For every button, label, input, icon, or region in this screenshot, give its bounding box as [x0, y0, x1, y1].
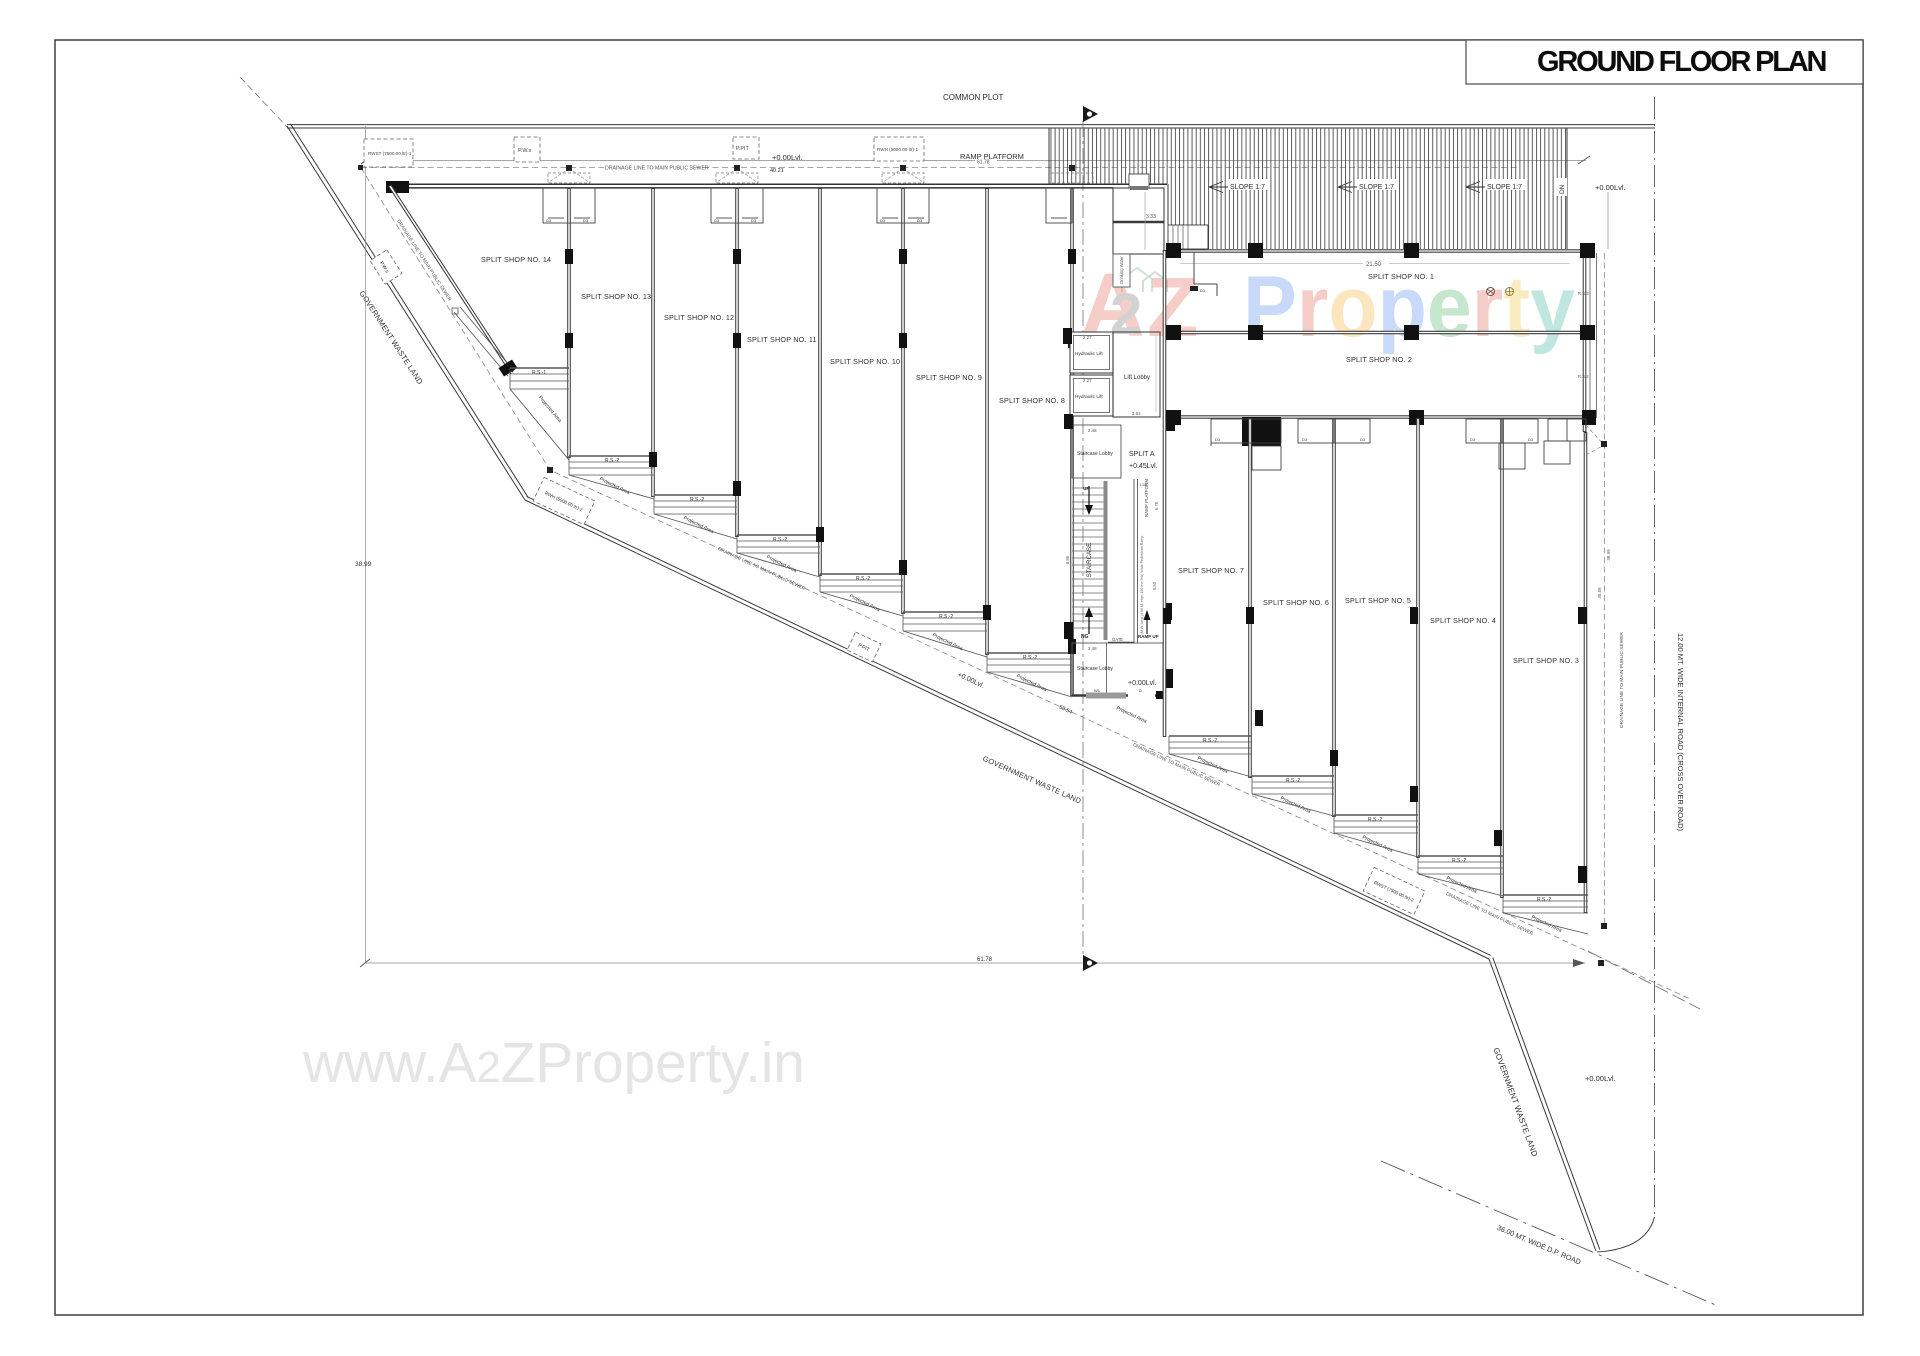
svg-text:D3: D3 — [1360, 437, 1366, 442]
svg-text:RAMP PLATFORM: RAMP PLATFORM — [960, 152, 1024, 161]
svg-text:SPLIT SHOP NO. 8: SPLIT SHOP NO. 8 — [999, 396, 1065, 405]
svg-text:D3: D3 — [751, 218, 757, 223]
svg-text:8.85: 8.85 — [1065, 555, 1070, 564]
svg-text:SPLIT SHOP NO. 14: SPLIT SHOP NO. 14 — [481, 255, 551, 264]
svg-text:R.S.-2: R.S.-2 — [939, 614, 953, 620]
svg-text:SPLIT SHOP NO. 9: SPLIT SHOP NO. 9 — [916, 373, 982, 382]
svg-text:Lift Lobby: Lift Lobby — [1124, 375, 1150, 381]
svg-text:SPLIT SHOP NO. 11: SPLIT SHOP NO. 11 — [747, 335, 817, 344]
svg-text:+0.00Lvl.: +0.00Lvl. — [1585, 1074, 1616, 1083]
svg-text:R.S.-1: R.S.-1 — [532, 370, 546, 376]
svg-text:R.S.-2: R.S.-2 — [605, 458, 619, 464]
svg-text:R.S-3: R.S-3 — [1578, 291, 1589, 296]
svg-text:RAMP PLATFORM: RAMP PLATFORM — [1144, 479, 1149, 518]
svg-text:D3: D3 — [714, 218, 720, 223]
svg-text:SLOPE 1:7: SLOPE 1:7 — [1359, 184, 1394, 191]
svg-text:P.PIT: P.PIT — [736, 146, 749, 152]
svg-text:Staircase Lobby: Staircase Lobby — [1077, 451, 1113, 457]
svg-text:61.78: 61.78 — [977, 957, 993, 963]
svg-text:38.99: 38.99 — [1606, 549, 1611, 561]
svg-text:GATE: GATE — [1112, 637, 1123, 642]
svg-text:Staircase Lobby: Staircase Lobby — [1077, 666, 1113, 672]
svg-text:D3: D3 — [1470, 437, 1476, 442]
svg-text:D3: D3 — [917, 218, 923, 223]
svg-text:SLOPE 1:7: SLOPE 1:7 — [1230, 184, 1265, 191]
svg-text:R.S.-2: R.S.-2 — [1023, 655, 1037, 661]
svg-text:P.W.s: P.W.s — [518, 148, 532, 154]
svg-text:R.S.-2: R.S.-2 — [1286, 778, 1300, 784]
svg-text:www.A2ZProperty.in: www.A2ZProperty.in — [302, 1031, 805, 1095]
svg-text:RWST (7500.00 ltr)-1: RWST (7500.00 ltr)-1 — [368, 151, 412, 156]
svg-text:DRAINAGE LINE TO MAIN PUBLIC S: DRAINAGE LINE TO MAIN PUBLIC SEWER — [1619, 632, 1625, 728]
svg-text:RWH (5000.00 ltr)-1: RWH (5000.00 ltr)-1 — [877, 147, 918, 152]
svg-text:D3: D3 — [583, 218, 589, 223]
svg-text:GROUND FLOOR PLAN: GROUND FLOOR PLAN — [1537, 46, 1829, 78]
svg-text:2.53: 2.53 — [1132, 411, 1141, 416]
svg-text:D3: D3 — [880, 218, 886, 223]
svg-text:STAIRCASE: STAIRCASE — [1086, 543, 1093, 578]
svg-text:SPLIT SHOP NO. 3: SPLIT SHOP NO. 3 — [1513, 656, 1579, 665]
svg-text:2: 2 — [1110, 282, 1142, 347]
svg-text:2.27: 2.27 — [1083, 335, 1092, 340]
svg-text:Hydraulic Lift: Hydraulic Lift — [1075, 394, 1103, 400]
svg-text:SPLIT SHOP NO. 12: SPLIT SHOP NO. 12 — [664, 313, 734, 322]
svg-text:DN: DN — [1559, 184, 1566, 194]
svg-text:SPLIT SHOP NO. 10: SPLIT SHOP NO. 10 — [830, 357, 900, 366]
svg-text:R.S-2: R.S-2 — [1578, 374, 1589, 379]
svg-text:NG: NG — [1081, 634, 1089, 640]
svg-text:SPLIT SHOP NO. 7: SPLIT SHOP NO. 7 — [1178, 566, 1244, 575]
svg-text:D3: D3 — [546, 218, 552, 223]
svg-text:SPLIT SHOP NO. 5: SPLIT SHOP NO. 5 — [1345, 596, 1411, 605]
svg-text:+0.45Lvl.: +0.45Lvl. — [1129, 463, 1158, 470]
svg-text:6.75: 6.75 — [1154, 501, 1159, 510]
svg-text:R.S.-2: R.S.-2 — [1452, 858, 1466, 864]
svg-text:2.27: 2.27 — [1083, 378, 1092, 383]
svg-text:W1: W1 — [1094, 688, 1101, 693]
svg-text:SPLIT SHOP NO. 13: SPLIT SHOP NO. 13 — [581, 292, 651, 301]
svg-text:D3: D3 — [1200, 288, 1206, 293]
svg-text:21.50: 21.50 — [1366, 262, 1382, 268]
svg-text:40.21: 40.21 — [770, 168, 784, 174]
svg-text:SPLIT SHOP NO. 1: SPLIT SHOP NO. 1 — [1368, 272, 1434, 281]
svg-text:D3: D3 — [1302, 437, 1308, 442]
svg-text:12.00 MT. WIDE INTERNAL ROAD (: 12.00 MT. WIDE INTERNAL ROAD (CROSS OVER… — [1676, 633, 1685, 832]
svg-text:R.S.-2: R.S.-2 — [1368, 817, 1382, 823]
svg-text:D3: D3 — [1215, 437, 1221, 442]
svg-text:R.S.-2: R.S.-2 — [856, 576, 870, 582]
svg-text:SPLIT SHOP NO. 6: SPLIT SHOP NO. 6 — [1263, 598, 1329, 607]
svg-text:2.48: 2.48 — [1088, 646, 1097, 651]
svg-text:SLOPE 1:7: SLOPE 1:7 — [1487, 184, 1522, 191]
svg-text:3.33: 3.33 — [1146, 214, 1156, 220]
svg-text:(M.W. long (3.00 M. High 150 m: (M.W. long (3.00 M. High 150 mm thk) Wid… — [1140, 536, 1144, 635]
svg-text:RAMP UP: RAMP UP — [1138, 634, 1159, 639]
svg-text:UP: UP — [1083, 486, 1089, 491]
svg-text:R.S.-2: R.S.-2 — [773, 537, 787, 543]
svg-text:2.48: 2.48 — [1088, 428, 1097, 433]
svg-text:R.S.-2: R.S.-2 — [1537, 897, 1551, 903]
svg-text:D3: D3 — [1528, 437, 1534, 442]
svg-text:D: D — [1139, 688, 1142, 693]
svg-text:38.99: 38.99 — [355, 561, 372, 568]
svg-text:Drinking Water: Drinking Water — [1119, 256, 1124, 284]
svg-text:SPLIT A: SPLIT A — [1129, 451, 1155, 458]
svg-text:R.S.-2: R.S.-2 — [690, 497, 704, 503]
svg-text:+0.00Lvl.: +0.00Lvl. — [1128, 680, 1157, 687]
svg-text:35.56: 35.56 — [1597, 587, 1602, 599]
svg-text:SPLIT SHOP NO. 2: SPLIT SHOP NO. 2 — [1346, 355, 1412, 364]
svg-text:Hydraulic Lift: Hydraulic Lift — [1075, 351, 1103, 357]
svg-text:COMMON PLOT: COMMON PLOT — [943, 93, 1004, 102]
svg-text:R.S.-2: R.S.-2 — [1203, 738, 1217, 744]
svg-text:DRAINAGE LINE TO MAIN PUBLIC S: DRAINAGE LINE TO MAIN PUBLIC SEWER — [605, 166, 709, 172]
svg-text:+0.00Lvl.: +0.00Lvl. — [1595, 183, 1626, 192]
svg-text:SPLIT SHOP NO. 4: SPLIT SHOP NO. 4 — [1430, 616, 1496, 625]
svg-text:+0.00Lvl.: +0.00Lvl. — [772, 153, 803, 162]
svg-text:5.50: 5.50 — [1152, 581, 1157, 590]
